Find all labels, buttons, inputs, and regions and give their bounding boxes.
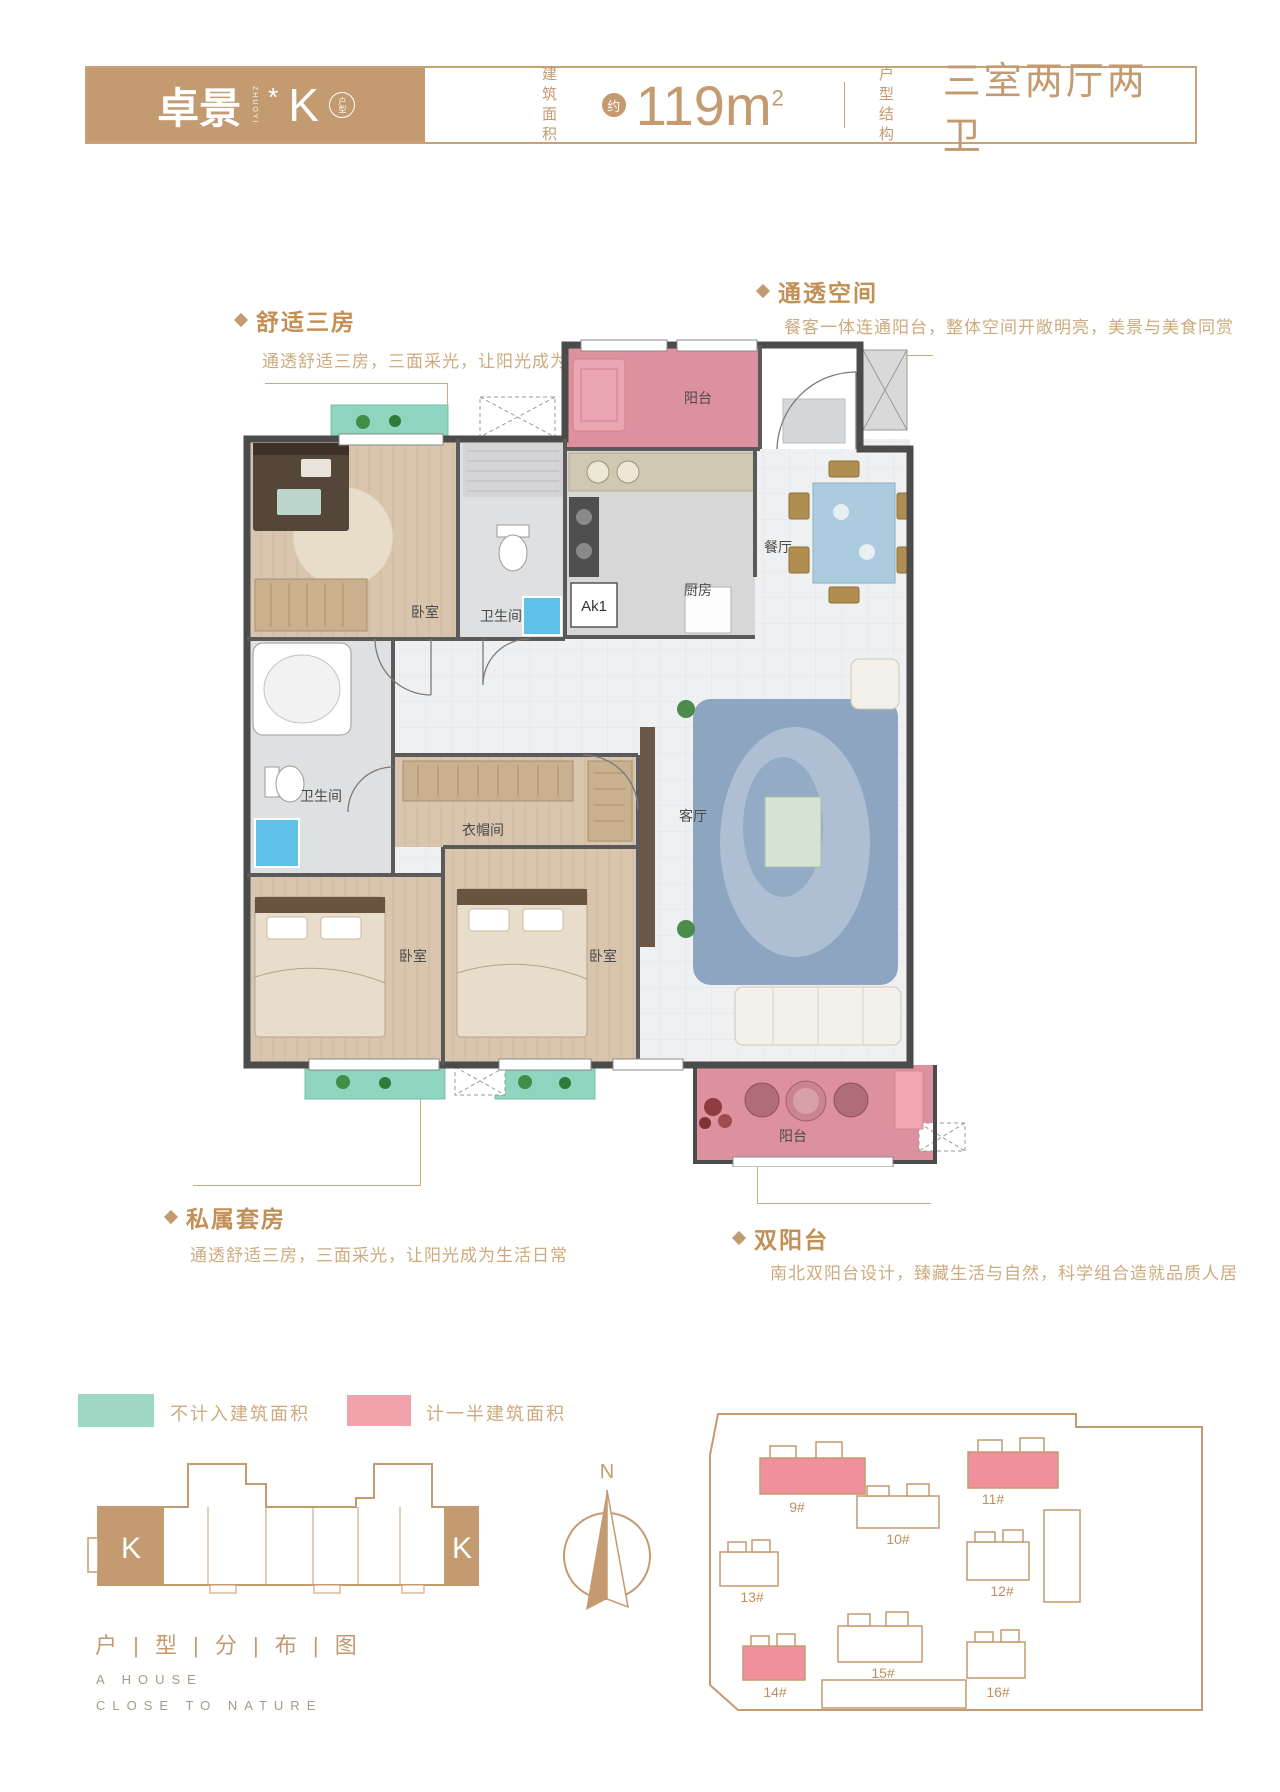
- floorplan-drawing: 阳台 厨房 餐厅 卧室 卫生间 卫生间 衣帽间 卧室 卧室 客厅 阳台 Ak1: [243, 337, 973, 1167]
- unit-k-left-label: K: [121, 1532, 141, 1565]
- floorplan-poster: 卓景 ZHUOYI * K 户型 建 筑 面 积 约 119m2 户 型 结 构…: [0, 0, 1280, 1792]
- unit-letter: K: [288, 78, 319, 132]
- area-label-bottom: 面 积: [542, 105, 588, 146]
- anno-open-title-text: 通透空间: [778, 274, 878, 308]
- label-bedroom-mid: 卧室: [589, 948, 617, 964]
- label-living: 客厅: [679, 808, 707, 824]
- compass-north-label: N: [600, 1461, 614, 1483]
- unit-k-right-label: K: [452, 1532, 472, 1565]
- building-11-label: 11#: [982, 1491, 1005, 1507]
- site-plan: 9# 10# 11# 12# 13#: [620, 1400, 1240, 1740]
- area-sup: 2: [772, 85, 784, 110]
- label-dining: 餐厅: [764, 539, 792, 555]
- anno-suite-title: 私属套房: [166, 1200, 286, 1234]
- building-14-label: 14#: [763, 1684, 787, 1700]
- header: 卓景 ZHUOYI * K 户型 建 筑 面 积 约 119m2 户 型 结 构…: [85, 66, 1197, 144]
- star-icon: *: [268, 82, 278, 113]
- struct-label-top: 户 型: [879, 65, 925, 106]
- label-bath-left: 卫生间: [300, 788, 342, 804]
- building-9-label: 9#: [789, 1499, 805, 1515]
- building-15-label: 15#: [871, 1665, 895, 1681]
- building-12-label: 12#: [990, 1583, 1014, 1599]
- building-13-label: 13#: [740, 1589, 764, 1605]
- anno-suite-desc: 通透舒适三房，三面采光，让阳光成为生活日常: [190, 1241, 568, 1266]
- area-value: 119m2: [636, 73, 784, 138]
- bed-mid-room: [457, 889, 587, 1037]
- anno-balcony-desc: 南北双阳台设计，臻藏生活与自然，科学组合造就品质人居: [770, 1259, 1238, 1284]
- brand-char-1: 卓景: [157, 75, 241, 136]
- brand-pinyin: ZHUOYI: [251, 86, 258, 124]
- building-10-label: 10#: [886, 1531, 910, 1547]
- label-bedroom-left: 卧室: [399, 948, 427, 964]
- tagline-line2: CLOSE TO NATURE: [96, 1698, 322, 1713]
- area-label-top: 建 筑: [542, 65, 588, 106]
- struct-label: 户 型 结 构: [879, 65, 925, 146]
- unit-distribution-diagram: K K: [58, 1452, 488, 1602]
- diamond-bullet-icon: [732, 1231, 746, 1245]
- header-divider: [844, 82, 845, 128]
- bed-left-room: [255, 897, 385, 1037]
- unit-type-badge-label: 户型: [338, 97, 346, 113]
- legend-teal-swatch: [78, 1394, 154, 1427]
- anno-balcony-title-text: 双阳台: [754, 1221, 829, 1255]
- header-specs: 建 筑 面 积 约 119m2 户 型 结 构 三室两厅两卫: [542, 68, 1187, 142]
- building-unlabeled-right: [1044, 1510, 1080, 1602]
- unit-type-badge: 户型: [329, 92, 355, 118]
- diamond-bullet-icon: [756, 284, 770, 298]
- anno-balcony-title: 双阳台: [734, 1221, 829, 1255]
- anno-comfort-title: 舒适三房: [236, 303, 356, 337]
- label-north-balcony: 阳台: [684, 390, 712, 406]
- anno-open-title: 通透空间: [758, 274, 878, 308]
- label-bedroom-top: 卧室: [411, 604, 439, 620]
- building-step: [88, 1538, 98, 1572]
- tagline-line1: A HOUSE: [96, 1672, 203, 1687]
- legend-teal-label: 不计入建筑面积: [170, 1400, 310, 1426]
- area-number: 119m: [636, 74, 772, 137]
- area-label: 建 筑 面 积: [542, 65, 588, 146]
- brand-block: 卓景 ZHUOYI * K 户型: [87, 68, 425, 142]
- compass-needle-dark: [586, 1490, 607, 1610]
- diamond-bullet-icon: [164, 1210, 178, 1224]
- distribution-title: 户 | 型 | 分 | 布 | 图: [95, 1628, 362, 1660]
- approx-badge: 约: [602, 93, 626, 117]
- bottom-notches: [210, 1585, 424, 1593]
- label-closet: 衣帽间: [462, 822, 504, 838]
- building-16-label: 16#: [986, 1684, 1010, 1700]
- legend-pink-label: 计一半建筑面积: [426, 1400, 566, 1426]
- legend-pink-swatch: [347, 1395, 411, 1426]
- label-kitchen: 厨房: [684, 582, 712, 598]
- anno-open-desc: 餐客一体连通阳台，整体空间开敞明亮，美景与美食同赏: [784, 313, 1234, 338]
- building-unlabeled-bottom: [822, 1680, 966, 1708]
- anno-suite-title-text: 私属套房: [186, 1200, 286, 1234]
- diamond-bullet-icon: [234, 313, 248, 327]
- north-balcony-fixtures: [573, 359, 625, 431]
- struct-label-bottom: 结 构: [879, 105, 925, 146]
- label-bath-top: 卫生间: [480, 608, 522, 624]
- label-south-balcony: 阳台: [779, 1128, 807, 1144]
- struct-value: 三室两厅两卫: [943, 50, 1187, 160]
- entry-fixtures: [783, 399, 845, 443]
- label-ac: Ak1: [581, 598, 607, 615]
- anno-comfort-title-text: 舒适三房: [256, 303, 356, 337]
